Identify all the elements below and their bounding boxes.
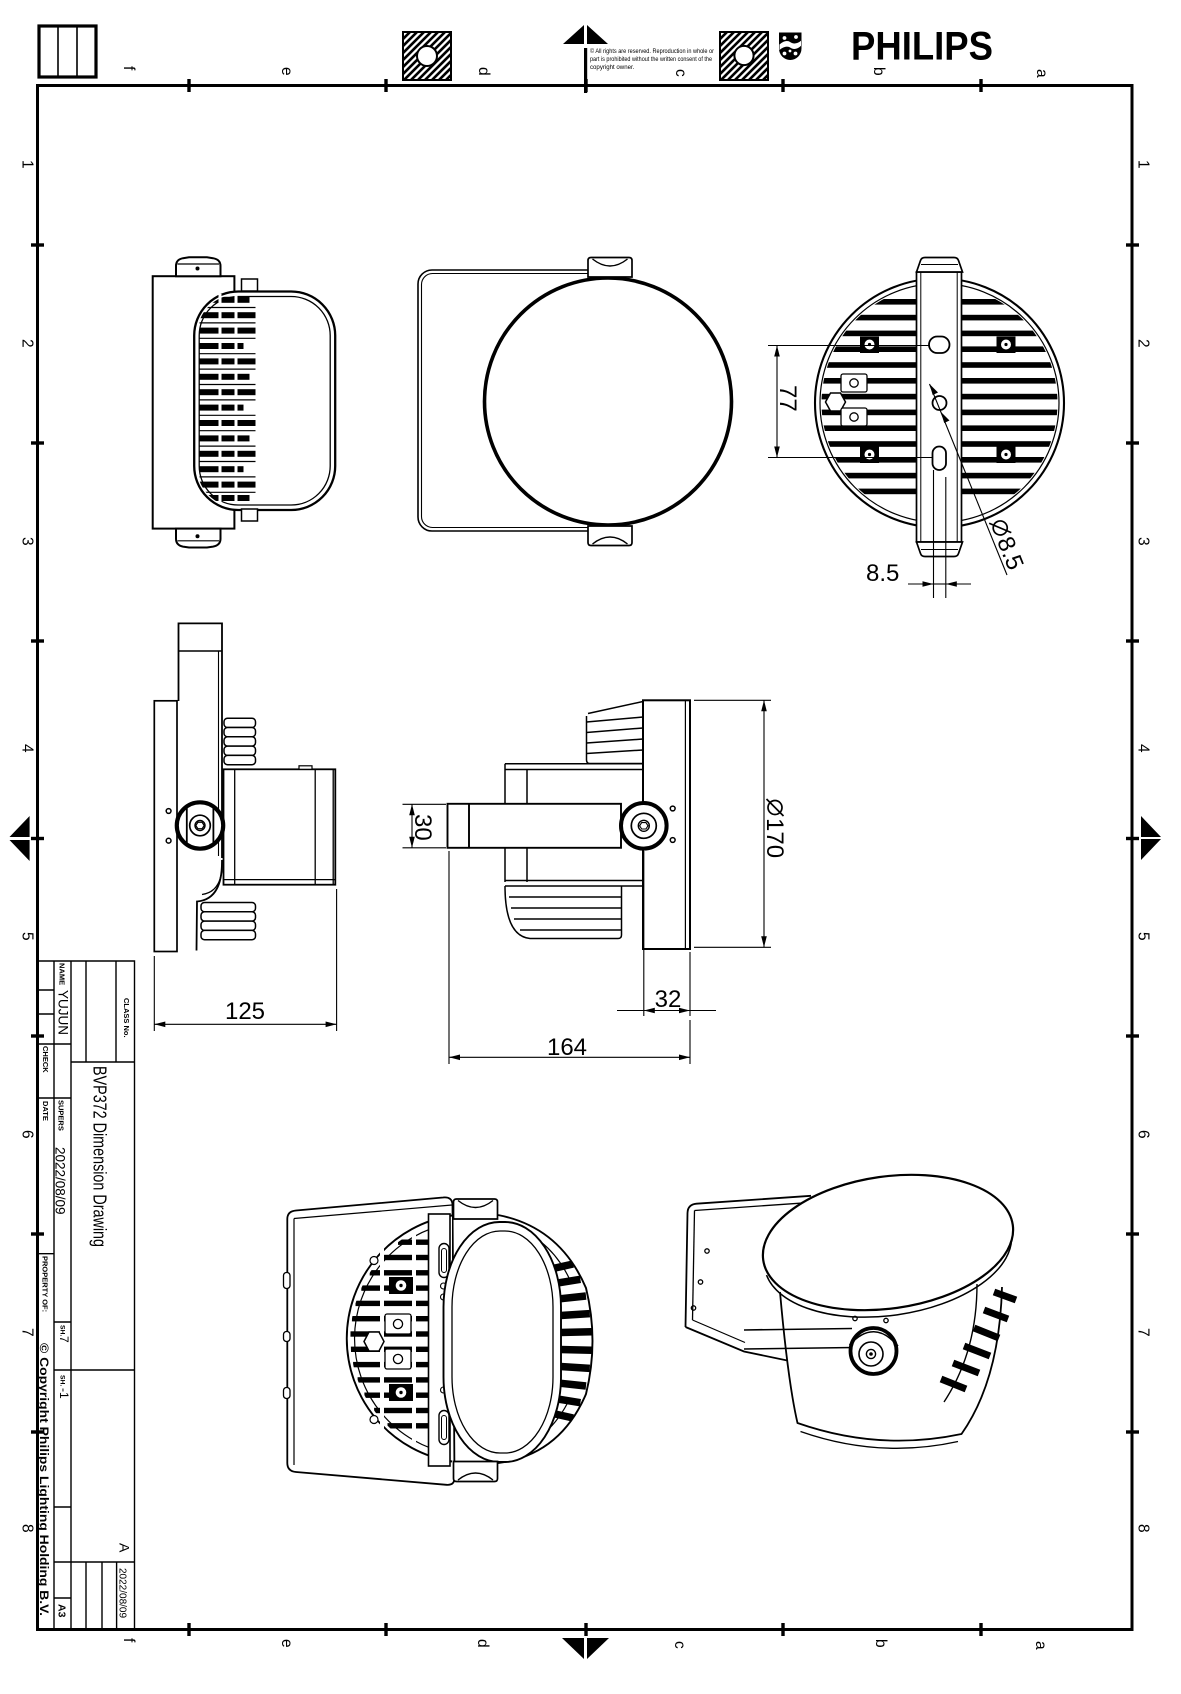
svg-text:© All rights are reserved. Rep: © All rights are reserved. Reproduction … bbox=[590, 48, 714, 55]
svg-text:125: 125 bbox=[225, 998, 265, 1025]
svg-text:8: 8 bbox=[1135, 1524, 1152, 1533]
svg-text:CLASS No.: CLASS No. bbox=[122, 998, 131, 1038]
svg-text:3: 3 bbox=[19, 537, 36, 546]
svg-text:f: f bbox=[120, 1638, 137, 1643]
svg-text:YUJUN: YUJUN bbox=[56, 990, 71, 1035]
svg-text:c: c bbox=[672, 69, 689, 77]
svg-text:32: 32 bbox=[655, 986, 682, 1013]
svg-text:CHECK: CHECK bbox=[41, 1046, 50, 1073]
svg-text:f: f bbox=[120, 66, 137, 71]
svg-text:2022/08/09: 2022/08/09 bbox=[53, 1147, 68, 1215]
svg-text:-1: -1 bbox=[57, 1388, 71, 1399]
svg-text:PROPERTY OF:: PROPERTY OF: bbox=[41, 1256, 50, 1312]
svg-text:1: 1 bbox=[19, 160, 36, 169]
svg-text:SUPERS: SUPERS bbox=[57, 1100, 66, 1131]
svg-text:a: a bbox=[1033, 69, 1050, 78]
svg-text:b: b bbox=[870, 67, 887, 76]
svg-text:a: a bbox=[1032, 1641, 1049, 1650]
svg-text:copyright owner.: copyright owner. bbox=[590, 64, 635, 71]
svg-text:7: 7 bbox=[57, 1336, 71, 1343]
svg-text:5: 5 bbox=[19, 932, 36, 941]
svg-text:e: e bbox=[278, 1639, 295, 1648]
svg-text:5: 5 bbox=[1135, 932, 1152, 941]
svg-text:4: 4 bbox=[1135, 744, 1152, 753]
svg-text:77: 77 bbox=[774, 385, 801, 412]
svg-text:SH.: SH. bbox=[59, 1325, 66, 1336]
svg-text:30: 30 bbox=[409, 814, 436, 841]
svg-text:2: 2 bbox=[1135, 339, 1152, 348]
svg-text:e: e bbox=[278, 67, 295, 76]
svg-text:1: 1 bbox=[1135, 160, 1152, 169]
svg-text:NAME: NAME bbox=[58, 963, 67, 985]
svg-text:b: b bbox=[872, 1639, 889, 1648]
svg-text:8.5: 8.5 bbox=[866, 560, 899, 587]
svg-text:part is prohibited without the: part is prohibited without the written c… bbox=[590, 56, 713, 63]
svg-text:PHILIPS: PHILIPS bbox=[851, 25, 993, 69]
svg-text:SH.: SH. bbox=[59, 1375, 66, 1386]
svg-text:7: 7 bbox=[19, 1328, 36, 1337]
svg-text:2022/08/09: 2022/08/09 bbox=[117, 1568, 128, 1618]
svg-text:6: 6 bbox=[1135, 1130, 1152, 1139]
svg-text:2: 2 bbox=[19, 339, 36, 348]
svg-text:164: 164 bbox=[547, 1034, 587, 1061]
svg-text:© Copyright Philips Lighting H: © Copyright Philips Lighting Holding B.V… bbox=[37, 1343, 51, 1616]
svg-text:A3: A3 bbox=[56, 1604, 68, 1618]
svg-text:3: 3 bbox=[1135, 537, 1152, 546]
svg-text:DATE: DATE bbox=[41, 1101, 50, 1121]
svg-text:d: d bbox=[475, 67, 492, 76]
svg-text:d: d bbox=[474, 1639, 491, 1648]
svg-text:8: 8 bbox=[19, 1524, 36, 1533]
svg-text:6: 6 bbox=[19, 1130, 36, 1139]
svg-text:c: c bbox=[671, 1641, 688, 1649]
svg-text:4: 4 bbox=[19, 744, 36, 753]
svg-text:7: 7 bbox=[1135, 1328, 1152, 1337]
svg-text:170: 170 bbox=[761, 818, 788, 858]
svg-text:A: A bbox=[117, 1543, 133, 1553]
svg-text:BVP372 Dimension Drawing: BVP372 Dimension Drawing bbox=[90, 1066, 111, 1247]
